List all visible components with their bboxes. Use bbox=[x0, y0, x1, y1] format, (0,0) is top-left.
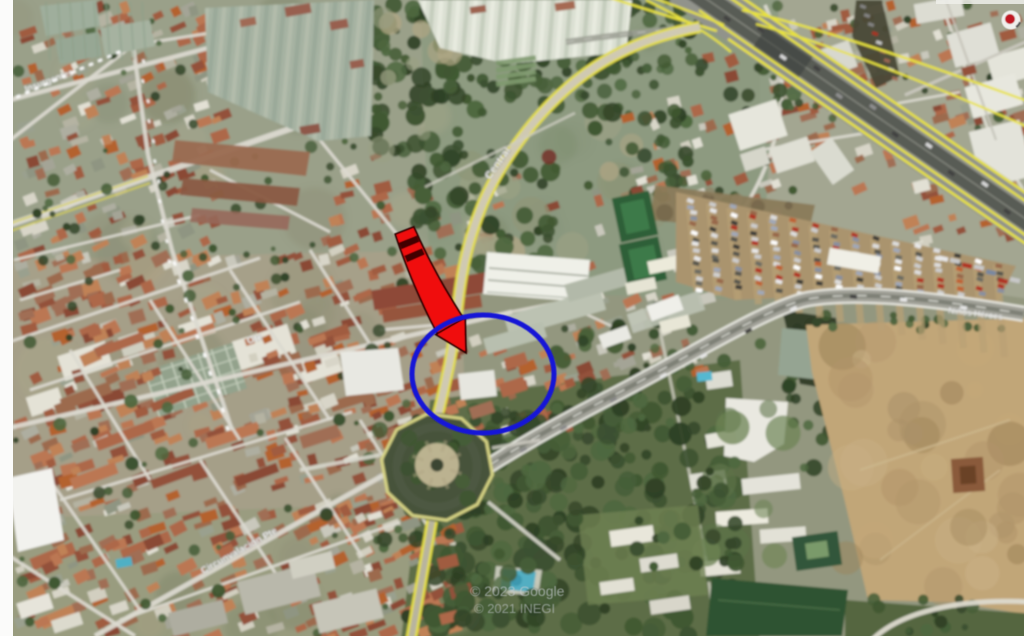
svg-text:© 2023 Google: © 2023 Google bbox=[470, 583, 565, 599]
svg-text:© 2021 INEGI: © 2021 INEGI bbox=[474, 601, 555, 616]
